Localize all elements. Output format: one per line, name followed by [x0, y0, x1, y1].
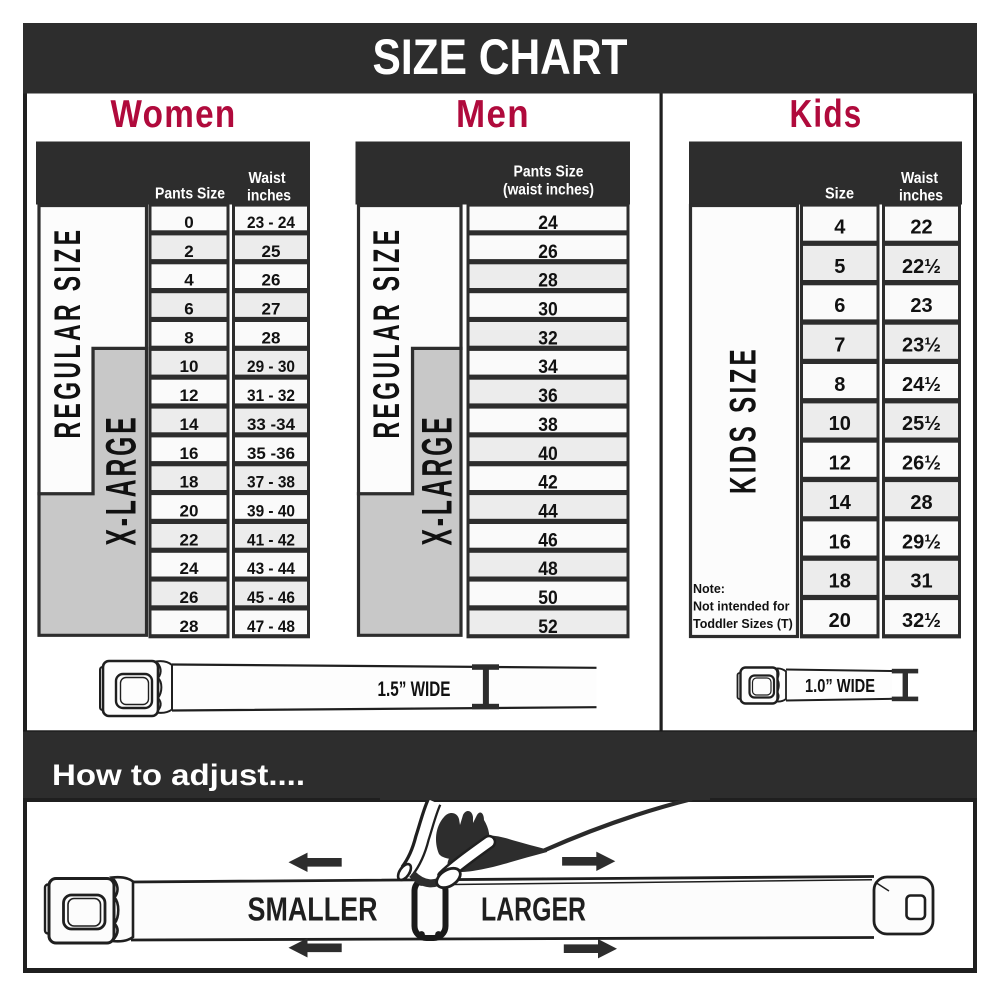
svg-text:10: 10	[180, 357, 199, 376]
svg-text:X-LARGE: X-LARGE	[414, 415, 462, 546]
svg-text:0: 0	[184, 213, 193, 232]
svg-text:Women: Women	[111, 93, 237, 136]
svg-text:28: 28	[538, 271, 558, 292]
svg-text:14: 14	[829, 492, 852, 514]
svg-text:Pants Size: Pants Size	[514, 164, 584, 181]
svg-text:48: 48	[538, 559, 558, 580]
svg-text:Men: Men	[456, 93, 530, 136]
svg-text:28: 28	[910, 492, 932, 514]
svg-text:29½: 29½	[902, 531, 941, 553]
svg-text:inches: inches	[899, 188, 943, 205]
svg-text:18: 18	[180, 473, 199, 492]
svg-text:12: 12	[829, 453, 851, 475]
svg-text:X-LARGE: X-LARGE	[98, 415, 146, 546]
svg-text:5: 5	[834, 256, 845, 278]
svg-text:28: 28	[262, 328, 281, 347]
svg-text:47 - 48: 47 - 48	[247, 617, 295, 636]
svg-text:26: 26	[538, 242, 558, 263]
svg-text:50: 50	[538, 588, 558, 609]
svg-text:31: 31	[910, 571, 932, 593]
svg-text:Pants Size: Pants Size	[155, 186, 225, 203]
svg-text:Note:: Note:	[693, 582, 725, 596]
svg-text:23½: 23½	[902, 335, 941, 357]
svg-text:18: 18	[829, 571, 851, 593]
svg-text:32½: 32½	[902, 610, 941, 632]
svg-text:Size: Size	[825, 186, 854, 203]
svg-text:52: 52	[538, 617, 558, 638]
svg-text:42: 42	[538, 473, 558, 494]
svg-text:1.0” WIDE: 1.0” WIDE	[805, 676, 875, 696]
svg-text:KIDS SIZE: KIDS SIZE	[722, 346, 763, 494]
svg-text:41 - 42: 41 - 42	[247, 530, 295, 549]
svg-text:26: 26	[262, 271, 281, 290]
svg-text:28: 28	[180, 617, 199, 636]
svg-text:23 - 24: 23 - 24	[247, 213, 295, 232]
svg-text:REGULAR SIZE: REGULAR SIZE	[47, 227, 88, 439]
svg-text:16: 16	[180, 444, 199, 463]
svg-text:29 - 30: 29 - 30	[247, 357, 295, 376]
svg-text:32: 32	[538, 328, 558, 349]
svg-text:23: 23	[910, 295, 932, 317]
svg-text:8: 8	[184, 328, 193, 347]
svg-text:46: 46	[538, 530, 558, 551]
svg-text:22: 22	[910, 217, 932, 239]
svg-text:4: 4	[184, 271, 194, 290]
svg-text:Waist: Waist	[901, 170, 939, 187]
svg-text:31 - 32: 31 - 32	[247, 386, 295, 405]
svg-text:24½: 24½	[902, 374, 941, 396]
svg-text:16: 16	[829, 531, 851, 553]
svg-text:37 - 38: 37 - 38	[247, 473, 295, 492]
svg-text:6: 6	[184, 300, 193, 319]
svg-text:25½: 25½	[902, 413, 941, 435]
svg-text:REGULAR SIZE: REGULAR SIZE	[366, 227, 407, 439]
svg-text:8: 8	[834, 374, 845, 396]
svg-text:10: 10	[829, 413, 851, 435]
svg-text:Not intended for: Not intended for	[693, 600, 790, 614]
svg-text:38: 38	[538, 415, 558, 436]
svg-text:Waist: Waist	[249, 170, 287, 187]
svg-text:35 -36: 35 -36	[247, 444, 295, 463]
svg-text:SMALLER: SMALLER	[248, 892, 378, 929]
svg-text:12: 12	[180, 386, 199, 405]
svg-text:1.5” WIDE: 1.5” WIDE	[378, 678, 451, 701]
svg-text:36: 36	[538, 386, 558, 407]
svg-text:22: 22	[180, 530, 199, 549]
svg-text:How to adjust....: How to adjust....	[52, 759, 305, 792]
svg-text:2: 2	[184, 242, 193, 261]
svg-text:(waist inches): (waist inches)	[503, 182, 594, 199]
svg-text:22½: 22½	[902, 256, 941, 278]
svg-text:7: 7	[834, 335, 845, 357]
svg-text:45 - 46: 45 - 46	[247, 588, 295, 607]
svg-text:33 -34: 33 -34	[247, 415, 296, 434]
svg-text:24: 24	[180, 559, 199, 578]
svg-text:39 - 40: 39 - 40	[247, 502, 295, 521]
svg-text:14: 14	[180, 415, 199, 434]
svg-text:40: 40	[538, 444, 558, 465]
svg-text:LARGER: LARGER	[481, 892, 586, 929]
svg-text:4: 4	[834, 217, 846, 239]
svg-text:34: 34	[538, 357, 558, 378]
svg-text:30: 30	[538, 300, 558, 321]
svg-text:27: 27	[262, 300, 281, 319]
svg-text:26½: 26½	[902, 453, 941, 475]
svg-text:26: 26	[180, 588, 199, 607]
svg-text:44: 44	[538, 502, 558, 523]
svg-text:SIZE CHART: SIZE CHART	[373, 29, 628, 85]
svg-text:Toddler Sizes (T): Toddler Sizes (T)	[693, 617, 793, 631]
svg-text:20: 20	[829, 610, 851, 632]
svg-text:24: 24	[538, 213, 558, 234]
svg-text:20: 20	[180, 502, 199, 521]
svg-text:Kids: Kids	[790, 93, 863, 136]
svg-text:25: 25	[262, 242, 281, 261]
svg-text:6: 6	[834, 295, 845, 317]
svg-text:inches: inches	[247, 188, 291, 205]
svg-text:43 - 44: 43 - 44	[247, 559, 295, 578]
